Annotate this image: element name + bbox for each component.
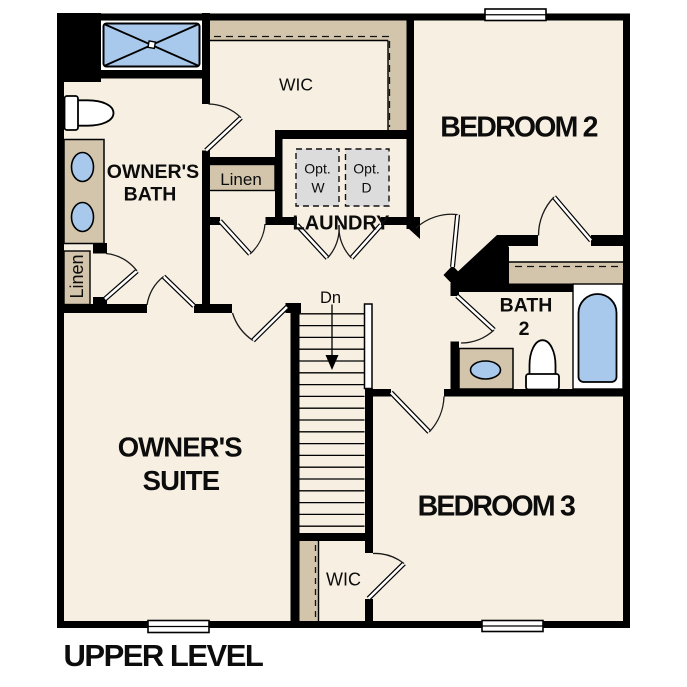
svg-text:WIC: WIC xyxy=(326,570,361,590)
svg-text:OWNER'S: OWNER'S xyxy=(107,161,199,183)
svg-text:W: W xyxy=(311,180,325,196)
svg-text:SUITE: SUITE xyxy=(143,465,220,496)
svg-text:BEDROOM 3: BEDROOM 3 xyxy=(418,491,575,523)
svg-text:UPPER LEVEL: UPPER LEVEL xyxy=(64,638,263,673)
svg-text:BATH: BATH xyxy=(500,295,553,317)
svg-text:D: D xyxy=(361,180,371,196)
svg-text:Opt.: Opt. xyxy=(304,161,330,177)
svg-text:Dn: Dn xyxy=(320,289,341,307)
svg-text:LAUNDRY: LAUNDRY xyxy=(292,213,390,235)
svg-text:BATH: BATH xyxy=(124,183,177,205)
svg-text:OWNER'S: OWNER'S xyxy=(118,432,243,463)
svg-text:WIC: WIC xyxy=(279,75,313,95)
svg-text:2: 2 xyxy=(519,318,530,340)
svg-text:BEDROOM 2: BEDROOM 2 xyxy=(440,111,597,143)
svg-text:Linen: Linen xyxy=(220,170,262,189)
svg-text:Linen: Linen xyxy=(67,254,87,298)
svg-text:Opt.: Opt. xyxy=(353,161,379,177)
